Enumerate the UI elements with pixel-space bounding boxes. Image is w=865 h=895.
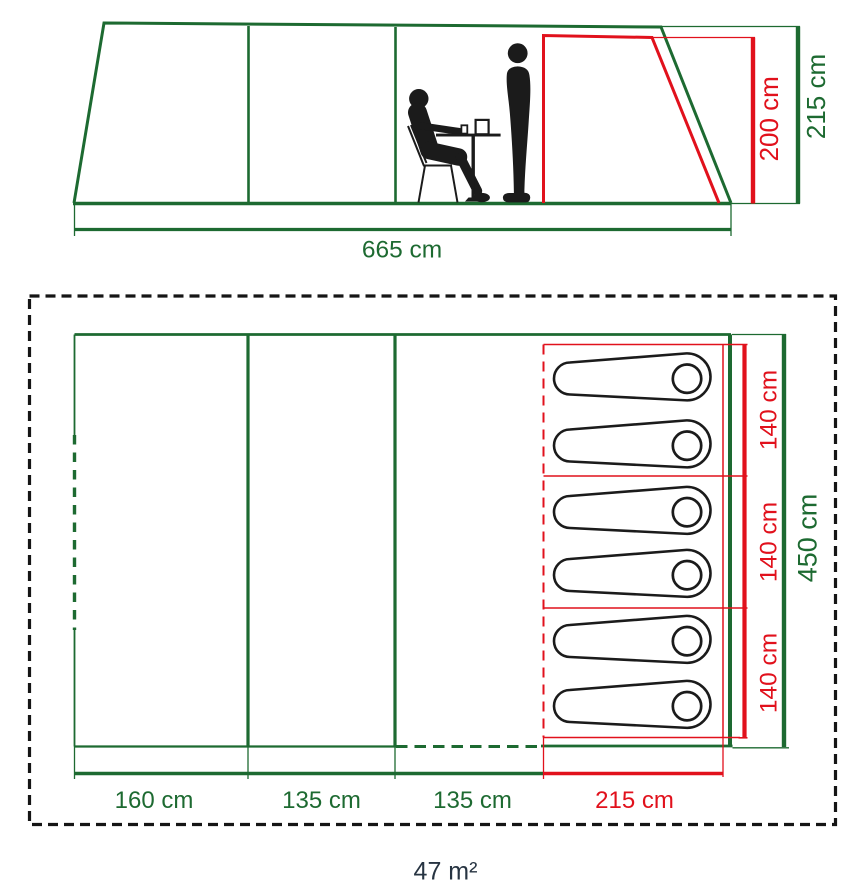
svg-text:160 cm: 160 cm — [115, 787, 194, 814]
svg-text:665 cm: 665 cm — [362, 237, 442, 264]
svg-text:140 cm: 140 cm — [756, 370, 783, 450]
svg-text:135 cm: 135 cm — [433, 787, 512, 814]
svg-text:215 cm: 215 cm — [595, 787, 674, 814]
svg-text:140 cm: 140 cm — [756, 502, 783, 582]
svg-text:450 cm: 450 cm — [793, 494, 823, 583]
svg-text:140 cm: 140 cm — [756, 633, 783, 713]
svg-text:47 m²: 47 m² — [414, 858, 478, 886]
svg-text:215 cm: 215 cm — [801, 54, 831, 139]
svg-text:135 cm: 135 cm — [282, 787, 361, 814]
svg-text:200 cm: 200 cm — [754, 76, 784, 161]
